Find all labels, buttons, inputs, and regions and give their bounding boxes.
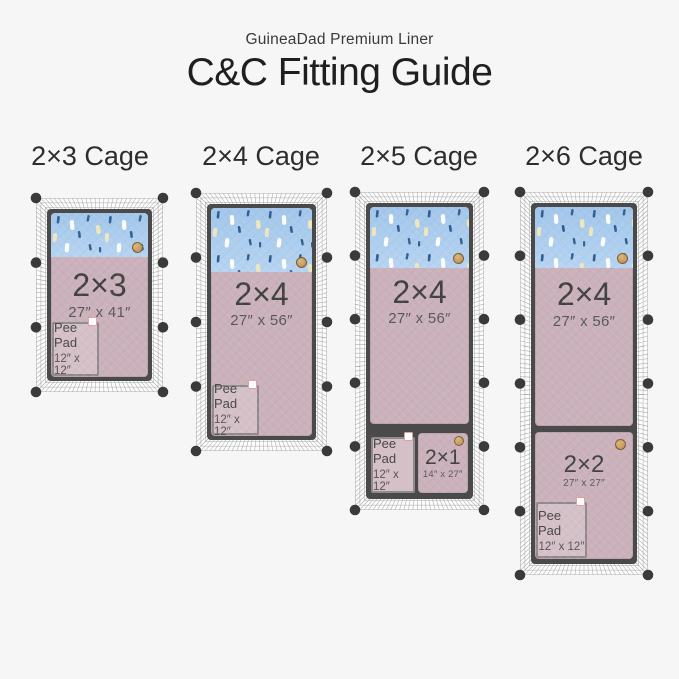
cage-2x3: 2×3 27″ x 41″ Pee Pad 12″ x 12″ — [36, 198, 163, 392]
liner-2x2: 2×2 27″ x 27″ Pee Pad 12″ x 12″ — [535, 432, 633, 559]
pee-pad: Pee Pad 12″ x 12″ — [212, 385, 259, 435]
liner-dims-label: 27″ x 56″ — [388, 310, 451, 327]
liner-dims-label: 27″ x 27″ — [563, 478, 605, 489]
page-title: C&C Fitting Guide — [0, 51, 679, 95]
pee-pad-size-label: 12″ x 12″ — [54, 353, 97, 377]
liner-dims-label: 27″ x 41″ — [68, 304, 131, 321]
snap-button-icon — [248, 380, 257, 389]
liner-2x1: 2×1 14″ x 27″ — [418, 433, 468, 493]
snap-button-icon — [576, 497, 585, 506]
liner-sky-pattern — [535, 207, 633, 268]
liner-sky-pattern — [211, 208, 312, 272]
liner-2x4-main: 2×4 27″ x 56″ — [535, 207, 633, 426]
cage-2x4: 2×4 27″ x 56″ Pee Pad 12″ x 12″ — [196, 193, 327, 451]
liner-2x4: 2×4 27″ x 56″ Pee Pad 12″ x 12″ — [211, 208, 312, 436]
cage-2x5: 2×4 27″ x 56″ Pee Pad 12″ x 12″ 2×1 14″ … — [355, 192, 484, 510]
fitting-guide-canvas: GuineaDad Premium Liner C&C Fitting Guid… — [0, 0, 679, 679]
liner-sky-pattern — [370, 207, 469, 268]
cage-2x6: 2×4 27″ x 56″ 2×2 27″ x 27″ Pee Pad 12″ … — [520, 192, 648, 575]
liner-size-label: 2×1 — [425, 446, 461, 469]
cage-opening: 2×3 27″ x 41″ Pee Pad 12″ x 12″ — [47, 209, 152, 381]
liner-size-label: 2×4 — [234, 278, 288, 312]
pee-pad-label: Pee Pad — [373, 436, 413, 466]
pee-pad: Pee Pad 12″ x 12″ — [536, 502, 587, 558]
pee-pad-size-label: 12″ x 12″ — [373, 469, 413, 493]
cage-heading-2x4: 2×4 Cage — [183, 141, 339, 172]
pee-pad: Pee Pad 12″ x 12″ — [371, 437, 415, 493]
liner-size-label: 2×4 — [392, 276, 446, 310]
brand-subtitle: GuineaDad Premium Liner — [0, 31, 679, 49]
liner-2x4-main: 2×4 27″ x 56″ — [370, 207, 469, 424]
liner-size-label: 2×4 — [557, 278, 611, 312]
liner-size-label: 2×3 — [72, 269, 126, 303]
snap-button-icon — [404, 432, 413, 441]
cage-opening: 2×4 27″ x 56″ Pee Pad 12″ x 12″ 2×1 14″ … — [366, 203, 473, 499]
pee-pad-label: Pee Pad — [538, 508, 585, 538]
pee-pad-size-label: 12″ x 12″ — [214, 414, 257, 436]
cage-heading-2x5: 2×5 Cage — [341, 141, 497, 172]
liner-sky-pattern — [51, 213, 148, 257]
guineadad-logo-icon — [296, 257, 307, 268]
liner-label-area: 2×1 14″ x 27″ — [418, 433, 468, 493]
liner-size-label: 2×2 — [564, 452, 605, 478]
liner-2x3: 2×3 27″ x 41″ Pee Pad 12″ x 12″ — [51, 213, 148, 377]
cage-opening: 2×4 27″ x 56″ 2×2 27″ x 27″ Pee Pad 12″ … — [531, 203, 637, 564]
liner-label-area: 2×4 27″ x 56″ — [370, 268, 469, 425]
pee-pad-size-label: 12″ x 12″ — [539, 541, 585, 553]
cage-heading-2x3: 2×3 Cage — [12, 141, 168, 172]
liner-dims-label: 14″ x 27″ — [423, 469, 463, 480]
liner-dims-label: 27″ x 56″ — [553, 313, 616, 330]
pee-pad: Pee Pad 12″ x 12″ — [52, 322, 99, 376]
cage-opening: 2×4 27″ x 56″ Pee Pad 12″ x 12″ — [207, 204, 316, 440]
snap-button-icon — [88, 317, 97, 326]
liner-label-area: 2×4 27″ x 56″ — [535, 268, 633, 426]
cage-heading-2x6: 2×6 Cage — [506, 141, 662, 172]
guineadad-logo-icon — [453, 253, 464, 264]
liner-dims-label: 27″ x 56″ — [230, 312, 293, 329]
